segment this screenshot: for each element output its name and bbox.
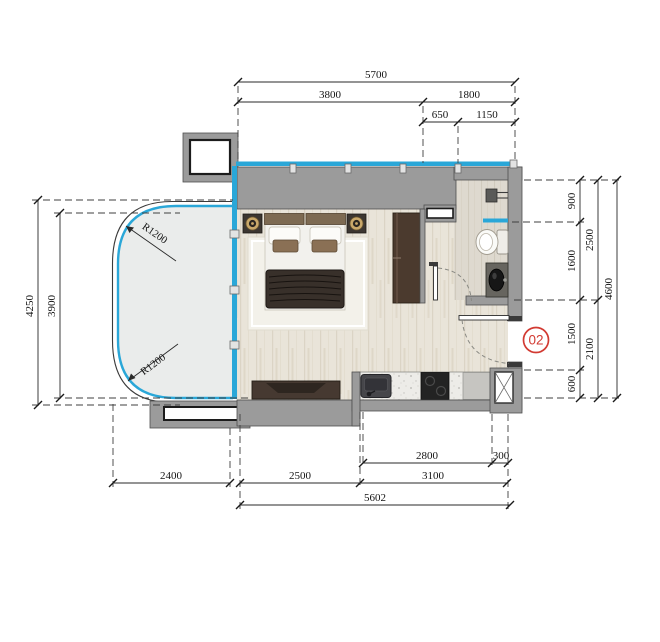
dim-right-total: 4600: [603, 278, 615, 301]
top-window-glass: [236, 162, 514, 167]
dim-top-right: 1800: [458, 89, 481, 101]
dim-top-left: 3800: [319, 89, 342, 101]
tv-console: [252, 381, 340, 399]
dim-left-inner: 3900: [46, 295, 58, 318]
floor-plan-drawing: R1200 R1200 02 5700 3800 1800 650 1150 4…: [0, 0, 660, 642]
wardrobe: [393, 213, 420, 303]
dim-bottom-kitchen: 2800: [416, 450, 439, 462]
ac-platform-top: [183, 133, 238, 182]
toilet-icon: [476, 230, 508, 255]
dim-bottom-shaft: 300: [493, 450, 510, 462]
bottom-wall-kitchen: [352, 400, 495, 411]
dim-bottom-kitchen-total: 3100: [422, 470, 445, 482]
nightstand-left: [243, 214, 262, 233]
unit-number: 02: [528, 333, 543, 348]
dim-right-hall: 1500: [566, 323, 578, 346]
bottom-wall-left: [237, 400, 358, 426]
shower-glass-partition: [483, 219, 508, 223]
kitchen-counter: [358, 372, 492, 400]
right-wall-upper: [508, 167, 522, 321]
door-jamb: [429, 262, 438, 266]
dim-bottom-balcony: 2400: [160, 470, 183, 482]
dim-bottom-living: 2500: [289, 470, 312, 482]
headboard: [265, 214, 305, 225]
floor-plan-canvas: R1200 R1200 02 5700 3800 1800 650 1150 4…: [0, 0, 660, 642]
dim-right-bath: 1600: [566, 250, 578, 273]
basin-icon: [489, 269, 504, 291]
bathroom-niche: [427, 209, 453, 219]
dim-right-shower: 900: [566, 192, 578, 209]
unit-number-badge: 02: [524, 328, 549, 353]
door-jamb: [507, 362, 522, 367]
dim-right-lower: 2100: [584, 338, 596, 361]
sink-icon: [361, 375, 391, 398]
dim-left-outer: 4250: [24, 295, 36, 318]
accent-pillow: [273, 240, 298, 252]
accent-pillow: [312, 240, 337, 252]
shaft-x: [495, 372, 513, 403]
bathroom-door-leaf: [434, 266, 438, 300]
nightstand-right: [347, 214, 366, 233]
kitchen-pier: [352, 372, 360, 426]
counter-end-section: [463, 373, 490, 400]
dim-top-sub-left: 650: [432, 109, 449, 121]
left-window-glass: [232, 166, 237, 399]
dim-right-upper: 2500: [584, 229, 596, 252]
entry-door-leaf: [459, 316, 509, 321]
bed: [265, 214, 346, 311]
dim-bottom-total: 5602: [364, 492, 386, 504]
vanity-sink: [486, 263, 508, 297]
cooktop-icon: [421, 373, 449, 400]
balcony-glass-railing: [118, 206, 233, 398]
dim-right-entry: 600: [566, 375, 578, 392]
dim-top-total: 5700: [365, 69, 388, 81]
bedroom-partition-wall: [420, 209, 425, 303]
dim-top-sub-right: 1150: [476, 109, 498, 121]
